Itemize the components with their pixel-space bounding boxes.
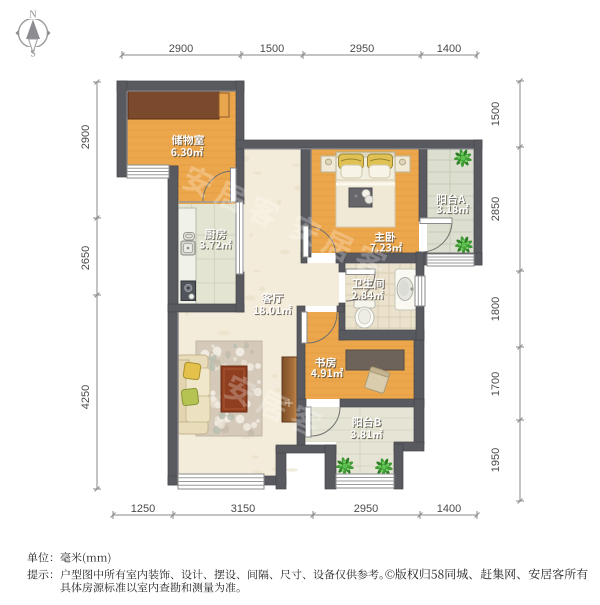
svg-text:3150: 3150 [231,503,255,515]
svg-text:1500: 1500 [490,102,502,126]
svg-text:1700: 1700 [490,372,502,396]
svg-text:1400: 1400 [437,503,461,515]
svg-text:1800: 1800 [490,297,502,321]
svg-text:2900: 2900 [169,43,193,55]
svg-text:1250: 1250 [131,503,155,515]
svg-text:1500: 1500 [260,43,284,55]
svg-text:2650: 2650 [80,246,92,270]
svg-text:2950: 2950 [350,43,374,55]
svg-text:2900: 2900 [80,125,92,149]
svg-text:2850: 2850 [490,197,502,221]
svg-text:1400: 1400 [437,43,461,55]
svg-text:N: N [29,10,36,21]
svg-text:1950: 1950 [490,448,502,472]
svg-text:2950: 2950 [354,503,378,515]
svg-text:4250: 4250 [80,385,92,409]
